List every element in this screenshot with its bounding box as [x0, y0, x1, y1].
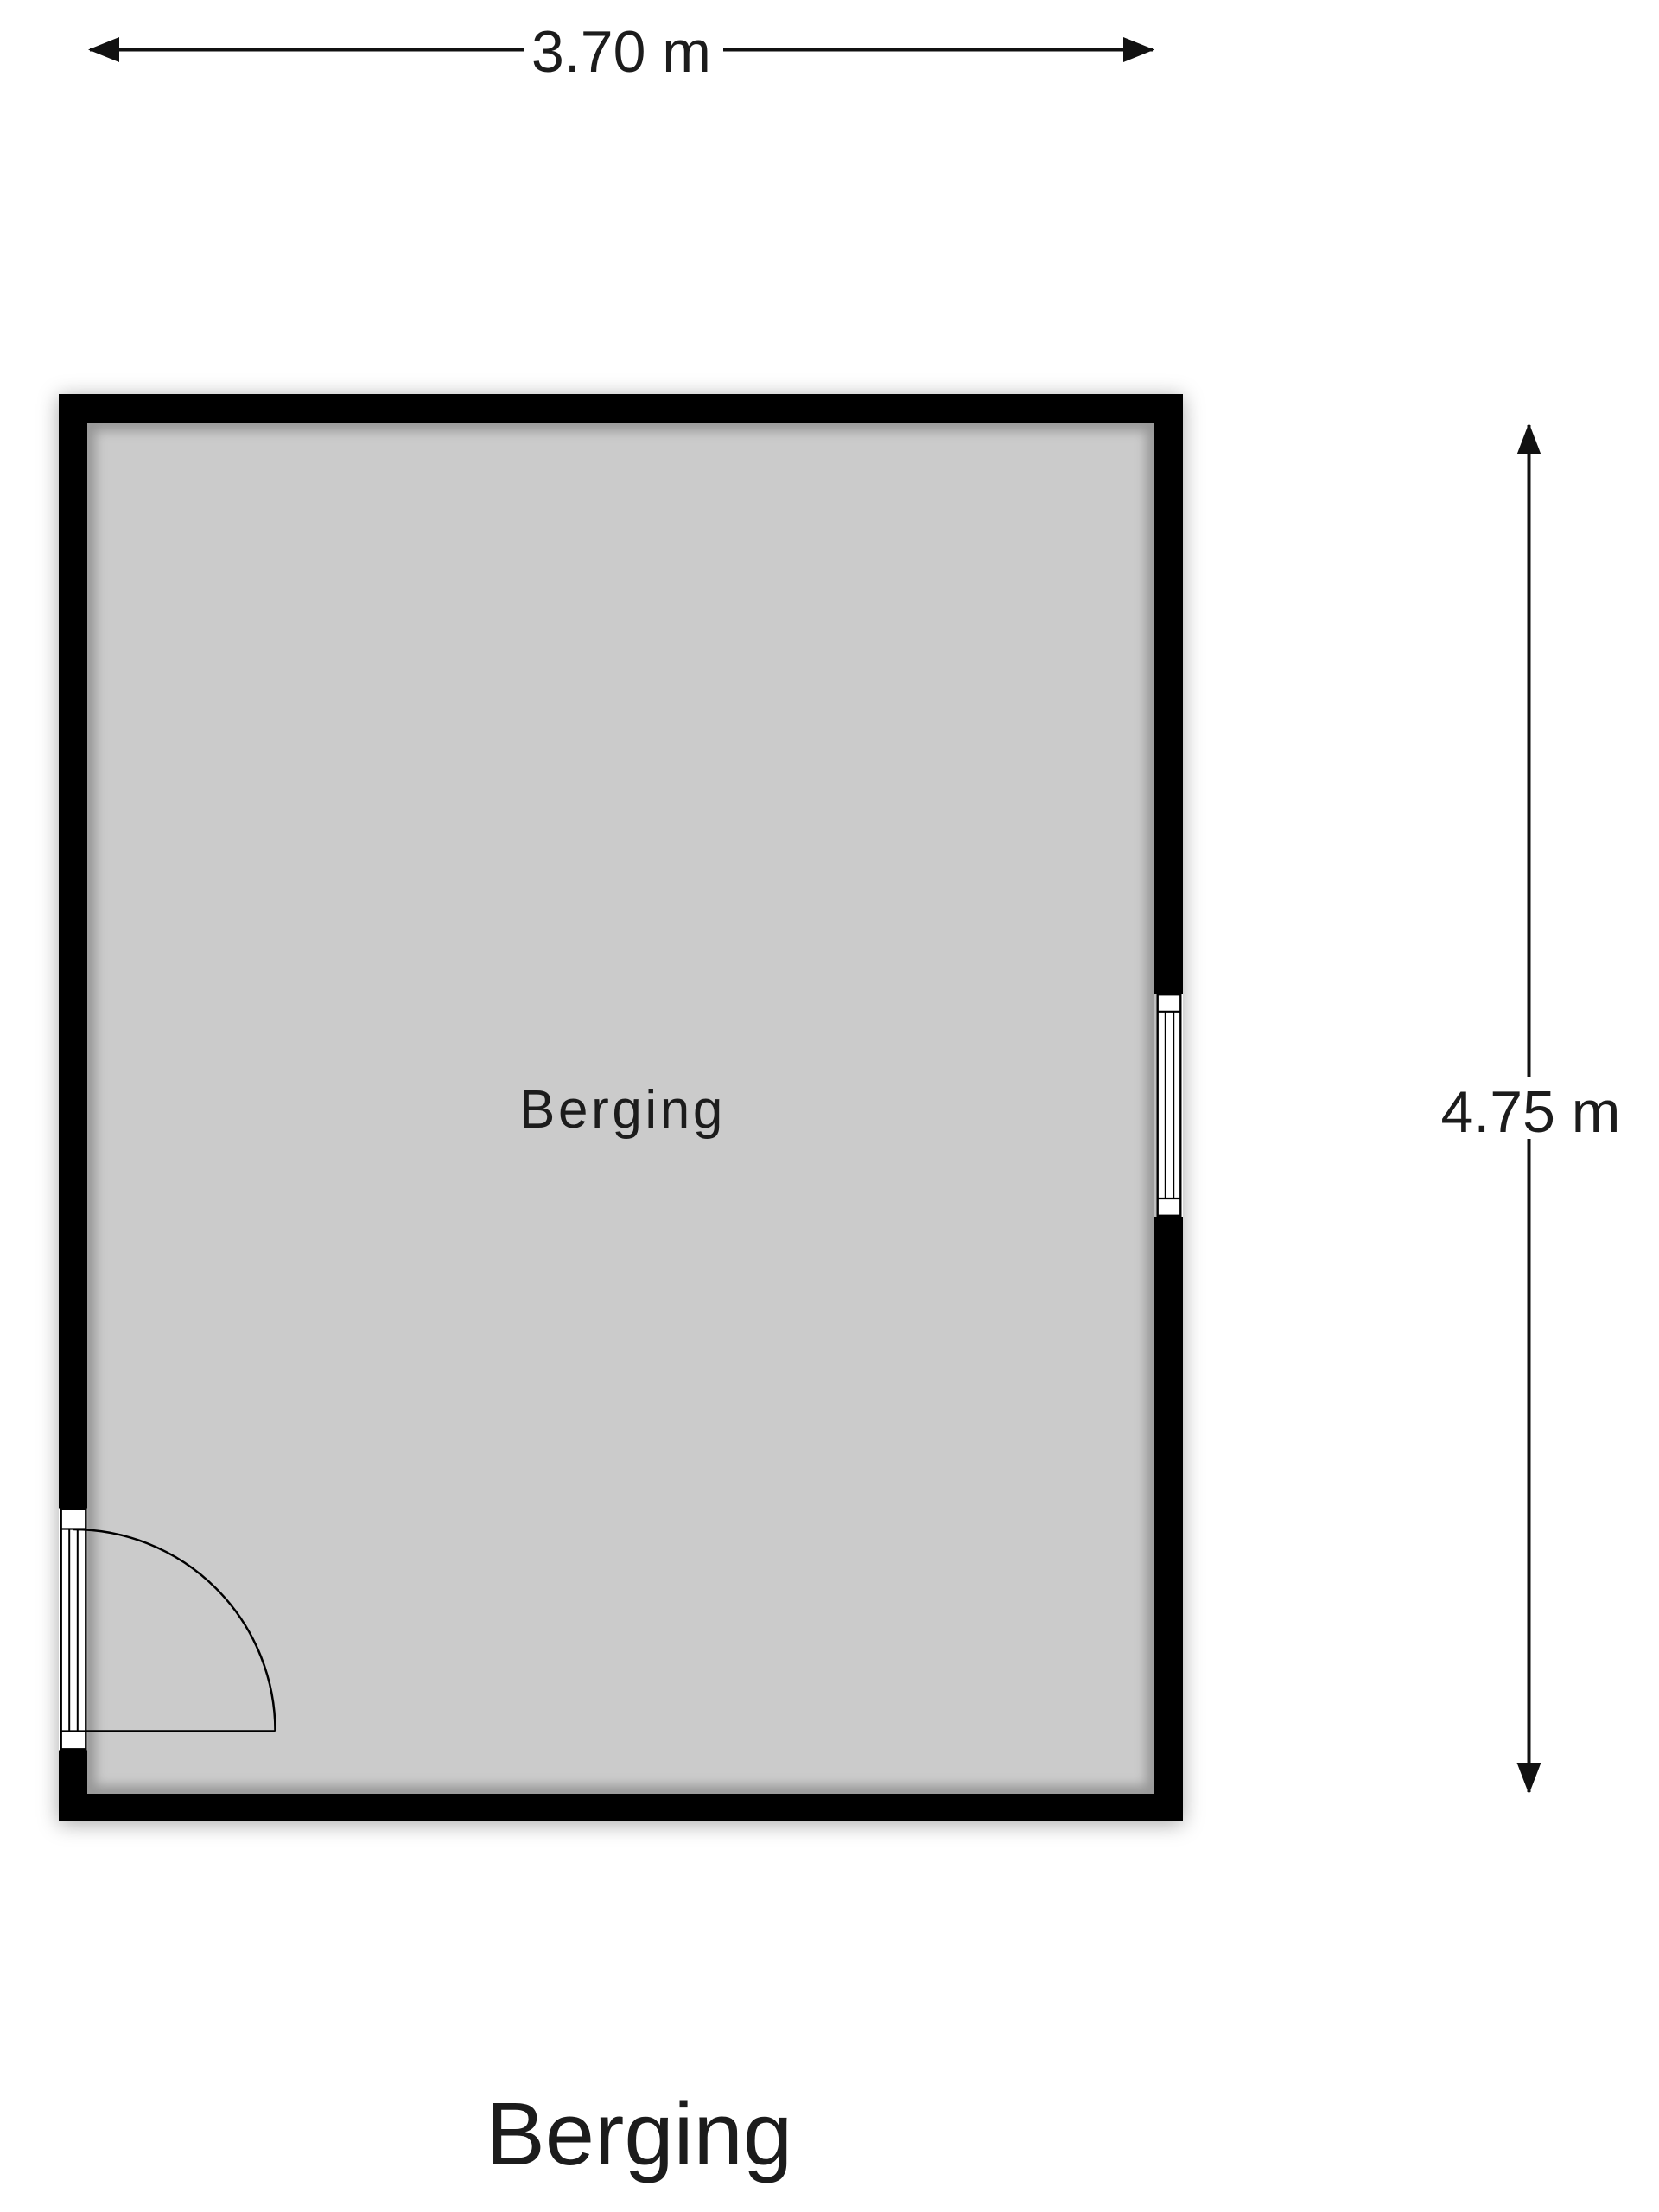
svg-text:Berging: Berging: [486, 2084, 792, 2183]
svg-text:4.75 m: 4.75 m: [1441, 1079, 1621, 1145]
svg-text:Berging: Berging: [519, 1080, 726, 1140]
svg-text:3.70 m: 3.70 m: [531, 19, 711, 85]
